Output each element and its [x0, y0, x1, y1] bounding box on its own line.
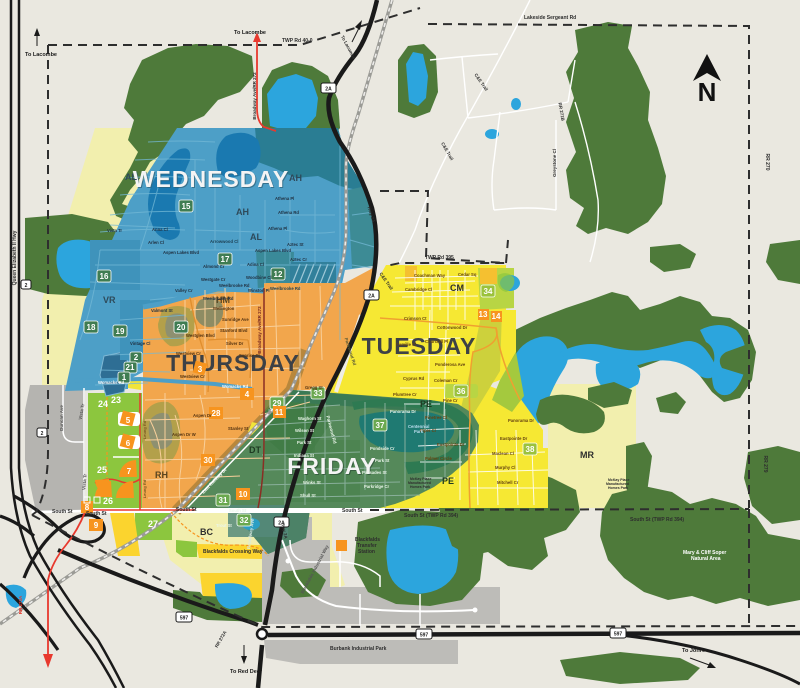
svg-text:MR: MR — [580, 450, 594, 460]
svg-text:RH: RH — [155, 470, 168, 480]
svg-text:Indiana St: Indiana St — [294, 453, 315, 458]
svg-text:Queen Elizabeth II Hwy: Queen Elizabeth II Hwy — [12, 230, 18, 285]
svg-text:Park: Park — [414, 429, 424, 434]
svg-text:12: 12 — [274, 270, 283, 279]
svg-text:Broadway Ave/RR 272: Broadway Ave/RR 272 — [252, 72, 257, 120]
svg-text:Aztec Cr: Aztec Cr — [290, 257, 307, 262]
svg-text:Adina Cl: Adina Cl — [247, 262, 264, 267]
svg-text:Wellington: Wellington — [213, 306, 235, 311]
svg-text:Station: Station — [358, 549, 375, 555]
svg-text:AL: AL — [125, 172, 137, 182]
svg-text:Wilson St: Wilson St — [295, 428, 315, 433]
svg-text:31: 31 — [219, 496, 228, 505]
svg-text:Athena Rd: Athena Rd — [278, 210, 299, 215]
svg-text:Palmer Circle: Palmer Circle — [425, 456, 452, 461]
svg-text:RR 270: RR 270 — [764, 154, 770, 171]
svg-text:Pondside Cr: Pondside Cr — [370, 446, 395, 451]
svg-text:28: 28 — [212, 409, 221, 418]
svg-text:2: 2 — [25, 283, 28, 289]
svg-text:To Joffre: To Joffre — [682, 648, 705, 654]
svg-text:Burbank Industrial Park: Burbank Industrial Park — [330, 646, 387, 652]
svg-text:Anna Cl: Anna Cl — [152, 227, 168, 232]
svg-text:BC: BC — [200, 527, 213, 537]
svg-text:Panorama Dr: Panorama Dr — [508, 418, 534, 423]
svg-text:Coleman Cr: Coleman Cr — [434, 378, 458, 383]
svg-text:South St: South St — [229, 508, 247, 513]
svg-text:Sunrise Cl: Sunrise Cl — [239, 353, 260, 358]
svg-text:Aspen Lakes Blvd: Aspen Lakes Blvd — [255, 248, 292, 253]
svg-text:RR 273A: RR 273A — [18, 595, 23, 614]
svg-text:South St: South St — [52, 509, 73, 515]
svg-text:South St: South St — [86, 511, 107, 517]
svg-text:2: 2 — [41, 431, 44, 437]
svg-text:WEDNESDAY: WEDNESDAY — [133, 166, 289, 192]
svg-text:AL: AL — [250, 232, 262, 242]
svg-text:597: 597 — [180, 616, 189, 622]
svg-text:36: 36 — [457, 387, 466, 396]
svg-text:Leung Rd: Leung Rd — [142, 420, 147, 439]
svg-text:Winks St: Winks St — [303, 480, 321, 485]
svg-text:PE: PE — [442, 476, 454, 486]
svg-text:30: 30 — [204, 456, 213, 465]
svg-text:Pine Cr: Pine Cr — [443, 398, 458, 403]
svg-text:N: N — [698, 77, 717, 107]
svg-text:24: 24 — [98, 399, 108, 409]
svg-text:PE: PE — [420, 399, 432, 409]
svg-text:Park St: Park St — [375, 458, 390, 463]
svg-text:Palisades St: Palisades St — [362, 470, 387, 475]
svg-text:Greystone Cl: Greystone Cl — [552, 149, 557, 177]
svg-text:Westgate Cr: Westgate Cr — [201, 277, 226, 282]
svg-text:Park St: Park St — [297, 440, 312, 445]
svg-text:Aspen Dr: Aspen Dr — [193, 413, 212, 418]
svg-text:South St (TWP Rd 394): South St (TWP Rd 394) — [404, 513, 458, 519]
svg-text:RR 279: RR 279 — [762, 456, 768, 473]
svg-text:Mitchell Cr: Mitchell Cr — [497, 480, 519, 485]
svg-text:Vintage Cl: Vintage Cl — [130, 341, 150, 346]
svg-text:Valley Cr: Valley Cr — [175, 288, 193, 293]
svg-text:Churchill Pl: Churchill Pl — [425, 339, 448, 344]
svg-text:Vista Tr: Vista Tr — [107, 228, 122, 233]
svg-text:Cyprus Rd: Cyprus Rd — [403, 376, 425, 381]
svg-text:Sunridge Ave: Sunridge Ave — [222, 317, 249, 322]
svg-text:Womacks Rd: Womacks Rd — [222, 384, 249, 389]
svg-text:19: 19 — [116, 327, 125, 336]
svg-text:2A: 2A — [325, 87, 332, 93]
svg-text:CM: CM — [450, 283, 464, 293]
svg-text:Camille Cl: Camille Cl — [396, 342, 416, 347]
svg-text:South St: South St — [342, 508, 363, 514]
svg-text:Cottonwood Dr: Cottonwood Dr — [437, 325, 468, 330]
svg-text:Westview Cr: Westview Cr — [180, 374, 205, 379]
svg-text:Almond Cr: Almond Cr — [203, 264, 225, 269]
svg-text:4: 4 — [245, 390, 250, 399]
svg-text:3: 3 — [198, 365, 203, 374]
svg-text:20: 20 — [177, 323, 186, 332]
svg-text:2A: 2A — [368, 294, 375, 300]
svg-text:Homes Park: Homes Park — [608, 486, 628, 490]
svg-text:Silver Dr: Silver Dr — [226, 341, 244, 346]
svg-text:23: 23 — [111, 395, 121, 405]
svg-text:Aspen Dr W: Aspen Dr W — [172, 432, 196, 437]
svg-text:6: 6 — [126, 439, 131, 448]
svg-text:Homes Park: Homes Park — [410, 485, 430, 489]
svg-text:South St: South St — [176, 507, 197, 513]
svg-text:21: 21 — [126, 363, 135, 372]
svg-text:Eastpointe Dr: Eastpointe Dr — [500, 436, 528, 441]
svg-text:Ponderosa Ave: Ponderosa Ave — [435, 362, 466, 367]
svg-text:DT: DT — [249, 445, 261, 455]
svg-text:597: 597 — [420, 633, 429, 639]
svg-text:To Lacombe: To Lacombe — [25, 52, 57, 58]
svg-text:VR: VR — [103, 295, 116, 305]
svg-text:Eastpointe Dr: Eastpointe Dr — [437, 442, 465, 447]
svg-text:Westview Cr: Westview Cr — [176, 351, 201, 356]
svg-text:Athena Pl: Athena Pl — [275, 196, 294, 201]
svg-text:Womacks Rd: Womacks Rd — [98, 380, 125, 385]
svg-text:13: 13 — [479, 310, 488, 319]
svg-text:Coachman Way: Coachman Way — [414, 273, 446, 278]
svg-text:South St (TWP Rd 394): South St (TWP Rd 394) — [630, 517, 684, 523]
svg-text:Valmont St: Valmont St — [151, 308, 173, 313]
svg-text:Woodbine Cl: Woodbine Cl — [246, 275, 272, 280]
svg-text:Weelbrooke Rd: Weelbrooke Rd — [219, 283, 250, 288]
svg-text:Plumtree Cr: Plumtree Cr — [393, 392, 417, 397]
svg-text:Cedar Sq: Cedar Sq — [458, 272, 477, 277]
svg-text:Stanley St: Stanley St — [228, 426, 249, 431]
svg-text:Leung Rd: Leung Rd — [142, 479, 147, 498]
svg-text:15: 15 — [182, 202, 191, 211]
svg-text:Natural Area: Natural Area — [691, 556, 721, 562]
svg-text:TWP Rd 395: TWP Rd 395 — [425, 255, 454, 261]
svg-text:Cambridge Cl: Cambridge Cl — [405, 287, 432, 292]
svg-text:14: 14 — [492, 312, 501, 321]
svg-text:Waghorn St: Waghorn St — [298, 416, 322, 421]
svg-text:7: 7 — [127, 467, 132, 476]
svg-text:Stanford Blvd: Stanford Blvd — [220, 328, 248, 333]
svg-text:27: 27 — [148, 519, 158, 529]
svg-text:To Lacombe: To Lacombe — [234, 30, 266, 36]
svg-text:18: 18 — [87, 323, 96, 332]
svg-text:25: 25 — [97, 465, 107, 475]
svg-text:9: 9 — [94, 521, 99, 530]
svg-text:AH: AH — [289, 173, 302, 183]
svg-text:Parkridge Cr: Parkridge Cr — [364, 484, 390, 489]
svg-text:37: 37 — [376, 421, 385, 430]
svg-text:AH: AH — [236, 207, 249, 217]
svg-text:Aspen Lakes Blvd: Aspen Lakes Blvd — [163, 250, 200, 255]
svg-text:34: 34 — [484, 287, 493, 296]
svg-text:Aztec St: Aztec St — [287, 242, 304, 247]
svg-text:Gregg St: Gregg St — [305, 385, 323, 390]
svg-text:Weelbrooke Rd: Weelbrooke Rd — [270, 286, 301, 291]
svg-text:26: 26 — [103, 496, 113, 506]
svg-text:Trout St: Trout St — [216, 523, 232, 528]
svg-text:TWP Rd 40-0: TWP Rd 40-0 — [282, 38, 313, 44]
svg-text:17: 17 — [221, 255, 230, 264]
svg-text:5: 5 — [126, 416, 131, 425]
svg-text:38: 38 — [526, 445, 535, 454]
svg-text:33: 33 — [314, 389, 323, 398]
svg-text:Maclean Cl: Maclean Cl — [492, 451, 514, 456]
svg-text:Blackfalds Crossing Way: Blackfalds Crossing Way — [203, 549, 263, 555]
svg-text:11: 11 — [275, 408, 284, 417]
svg-text:Westglen Blvd: Westglen Blvd — [186, 333, 215, 338]
svg-text:Pinetree Cl: Pinetree Cl — [425, 415, 447, 420]
svg-text:Athena Pl: Athena Pl — [268, 226, 287, 231]
svg-text:Panorama Dr: Panorama Dr — [390, 409, 416, 414]
svg-text:Murphy Cl: Murphy Cl — [495, 465, 515, 470]
svg-text:Arrowwood Cl: Arrowwood Cl — [210, 239, 238, 244]
svg-text:Duncan Ave: Duncan Ave — [59, 405, 64, 431]
svg-text:2: 2 — [134, 353, 139, 362]
svg-text:597: 597 — [614, 632, 623, 638]
svg-text:32: 32 — [240, 516, 249, 525]
svg-text:Shull St: Shull St — [300, 493, 316, 498]
svg-text:Weelbrooke Rd: Weelbrooke Rd — [203, 296, 234, 301]
svg-text:Winston Pl: Winston Pl — [248, 288, 270, 293]
svg-text:TUESDAY: TUESDAY — [362, 333, 477, 359]
svg-text:16: 16 — [100, 272, 109, 281]
svg-text:Crimson Ct: Crimson Ct — [404, 316, 427, 321]
svg-text:Arlen Cl: Arlen Cl — [148, 240, 164, 245]
svg-text:Broadway Ave/RR 272: Broadway Ave/RR 272 — [257, 306, 262, 354]
svg-text:10: 10 — [239, 490, 248, 499]
svg-text:Lakeside Sergeant Rd: Lakeside Sergeant Rd — [524, 15, 576, 21]
svg-text:To Red Deer: To Red Deer — [230, 669, 263, 675]
